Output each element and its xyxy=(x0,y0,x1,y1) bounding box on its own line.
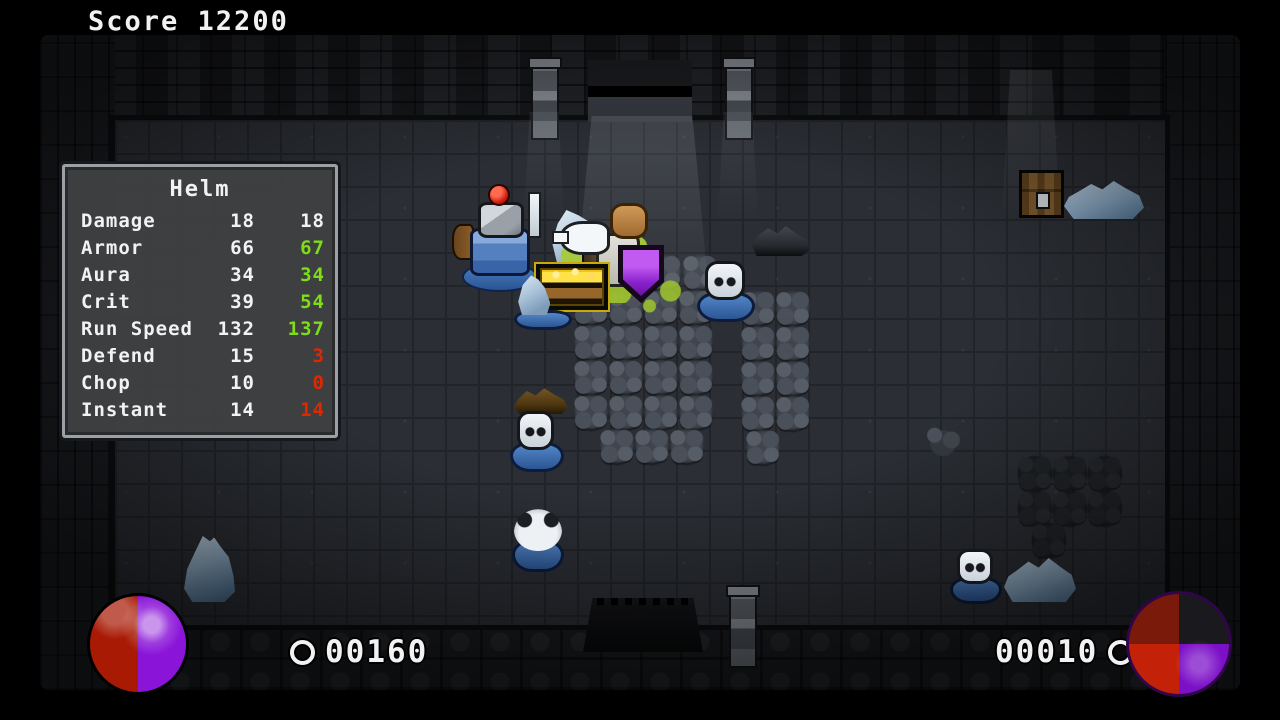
stat-label: Chop xyxy=(81,370,131,397)
stat-next: 34 xyxy=(245,262,325,289)
ice-pile xyxy=(183,536,235,602)
stat-label: Crit xyxy=(81,289,131,316)
stat-row: Crit3954 xyxy=(65,289,335,316)
stat-row: Defend153 xyxy=(65,343,335,370)
k-plume xyxy=(488,184,510,206)
left-counter: 00160 xyxy=(290,634,428,670)
stat-current: 66 xyxy=(175,235,255,262)
stat-current: 15 xyxy=(175,343,255,370)
stat-next: 14 xyxy=(245,397,325,424)
stat-label: Armor xyxy=(81,235,143,262)
stat-label: Instant xyxy=(81,397,168,424)
game-screen: Score 12200 Helm Damage1818Armor6667Aura… xyxy=(0,0,1280,720)
stat-current: 10 xyxy=(175,370,255,397)
h-hair xyxy=(610,203,648,239)
stat-label: Aura xyxy=(81,262,131,289)
score: Score 12200 xyxy=(88,6,289,37)
stat-next: 3 xyxy=(245,343,325,370)
ice-flat xyxy=(1004,558,1076,602)
panel-title: Helm xyxy=(65,177,335,202)
puddle-ice xyxy=(512,288,574,330)
stat-label: Damage xyxy=(81,208,156,235)
ice-flat xyxy=(1064,181,1144,219)
stat-next: 18 xyxy=(245,208,325,235)
stat-current: 34 xyxy=(175,262,255,289)
left-counter-value: 00160 xyxy=(325,634,428,670)
stat-row: Run Speed132137 xyxy=(65,316,335,343)
skull-enemy xyxy=(508,410,566,472)
stat-current: 18 xyxy=(175,208,255,235)
skull-enemy xyxy=(948,548,1004,604)
stat-label: Defend xyxy=(81,343,156,370)
stat-next: 0 xyxy=(245,370,325,397)
stat-row: Armor6667 xyxy=(65,235,335,262)
stat-next: 137 xyxy=(245,316,325,343)
right-counter-value: 00010 xyxy=(995,634,1098,670)
bird-enemy xyxy=(510,506,566,572)
k-sword xyxy=(528,192,541,238)
stat-current: 132 xyxy=(175,316,255,343)
stat-row: Aura3434 xyxy=(65,262,335,289)
knight xyxy=(452,188,547,290)
rubble-small xyxy=(922,424,964,456)
stat-current: 14 xyxy=(175,397,255,424)
stat-next: 54 xyxy=(245,289,325,316)
orb-icon xyxy=(290,640,315,665)
chest-closed xyxy=(1019,170,1064,218)
stat-row: Chop100 xyxy=(65,370,335,397)
stat-row: Damage1818 xyxy=(65,208,335,235)
enemy-pie-icon xyxy=(1126,591,1232,697)
stat-rows: Damage1818Armor6667Aura3434Crit3954Run S… xyxy=(65,208,335,424)
score-value: 12200 xyxy=(198,6,289,37)
h-beak xyxy=(552,231,569,244)
skull-enemy xyxy=(695,260,757,322)
rubble-boat xyxy=(752,222,810,256)
light-shaft-right-fixture xyxy=(718,112,758,222)
k-helm xyxy=(478,202,524,238)
score-label: Score xyxy=(88,6,179,37)
stat-next: 67 xyxy=(245,235,325,262)
right-counter: 00010 xyxy=(995,634,1133,670)
helm-panel: Helm Damage1818Armor6667Aura3434Crit3954… xyxy=(62,164,338,438)
stat-current: 39 xyxy=(175,289,255,316)
player-pie-icon xyxy=(87,593,189,695)
stat-row: Instant1414 xyxy=(65,397,335,424)
